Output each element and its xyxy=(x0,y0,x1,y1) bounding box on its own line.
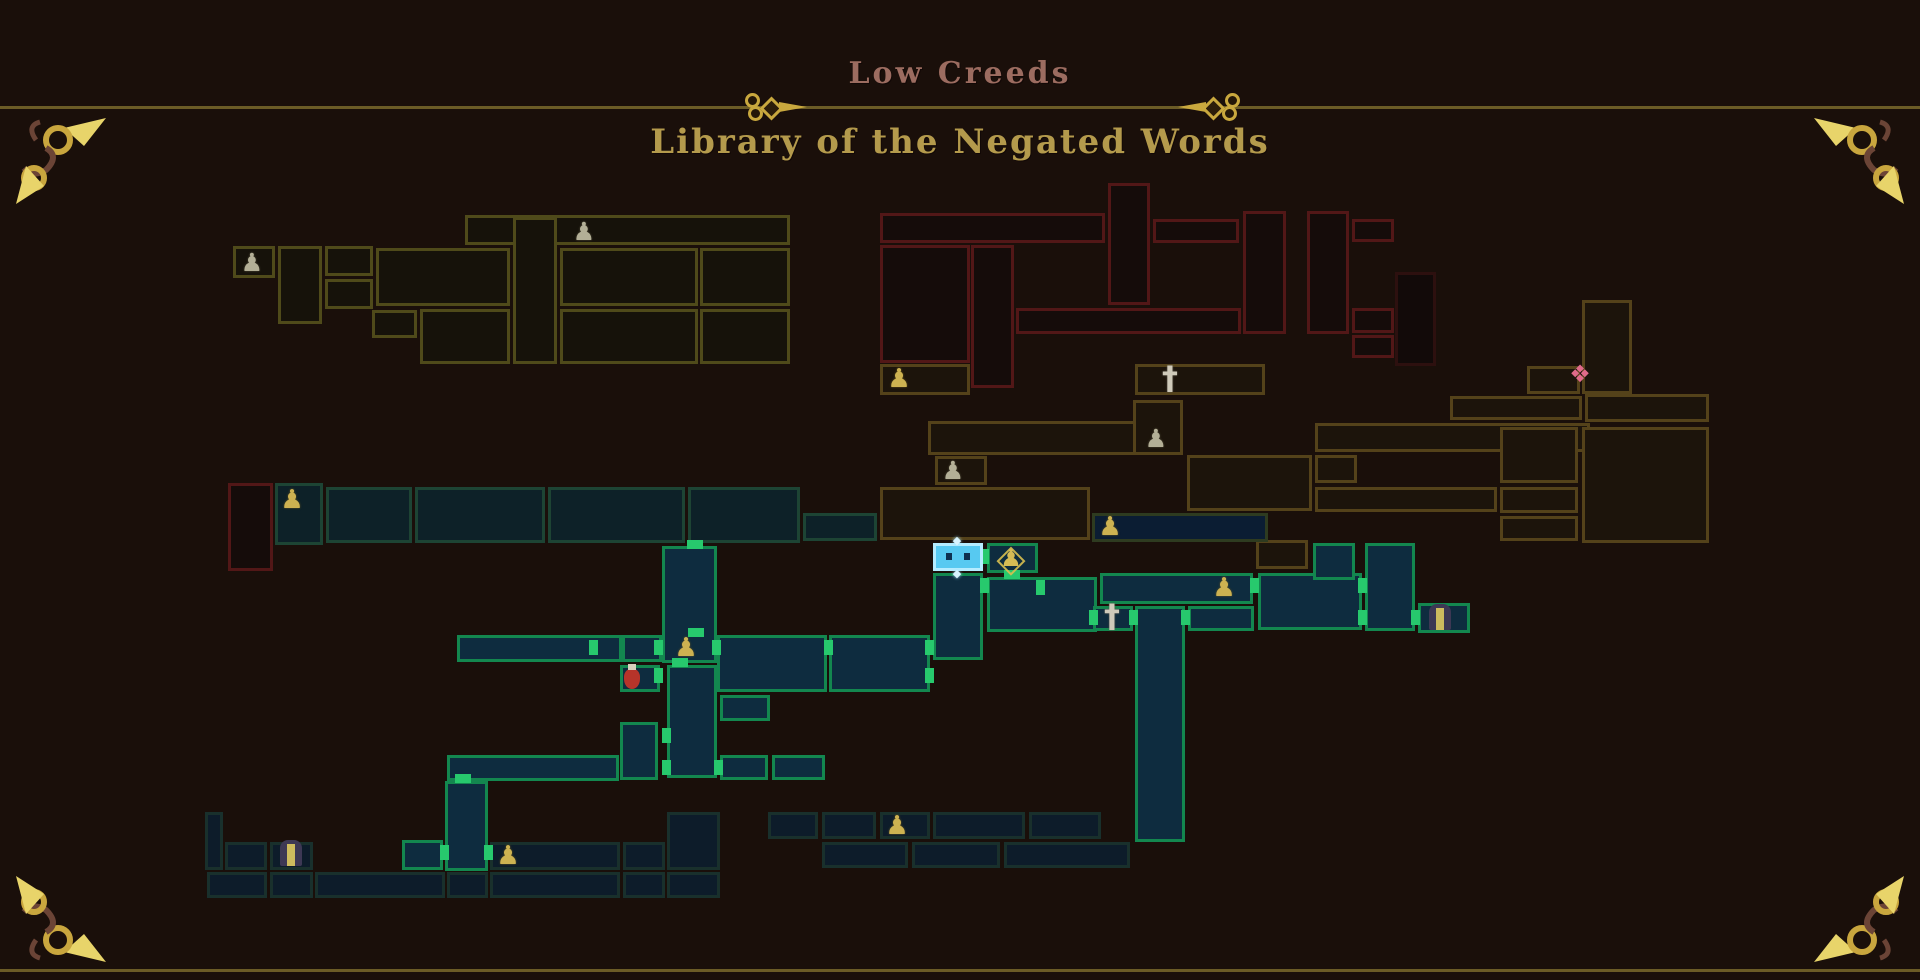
map-room xyxy=(1352,219,1394,242)
door-marker xyxy=(484,845,493,860)
map-room xyxy=(971,245,1014,388)
door-marker xyxy=(1129,610,1138,625)
map-room xyxy=(376,248,510,306)
map-room xyxy=(1500,487,1578,513)
door-marker xyxy=(662,728,671,743)
map-room xyxy=(1582,427,1709,543)
map-room xyxy=(325,279,373,309)
map-room xyxy=(402,840,443,870)
door-marker xyxy=(925,640,934,655)
lantern-gold-icon xyxy=(884,811,910,841)
door-marker xyxy=(980,578,989,593)
door-marker xyxy=(714,760,723,775)
map-room xyxy=(667,872,720,898)
map-room xyxy=(928,421,1148,455)
flask-icon xyxy=(624,669,640,689)
diamond-pink-icon xyxy=(1567,359,1593,389)
map-room xyxy=(1315,455,1357,483)
door-marker xyxy=(654,640,663,655)
map-room xyxy=(667,812,720,870)
map-room xyxy=(623,872,665,898)
map-room xyxy=(1307,211,1349,334)
map-room xyxy=(1153,219,1239,243)
map-room xyxy=(326,487,412,543)
map-room xyxy=(700,309,790,364)
map-room xyxy=(1243,211,1286,334)
map-room xyxy=(1016,308,1241,334)
map-room xyxy=(822,842,908,868)
sword-icon xyxy=(1157,363,1183,393)
map-room xyxy=(205,812,223,870)
door-marker xyxy=(1036,580,1045,595)
gate-icon xyxy=(280,840,302,866)
map-room xyxy=(415,487,545,543)
map-room xyxy=(513,217,557,364)
map-room xyxy=(1500,516,1578,541)
door-marker xyxy=(1358,610,1367,625)
map-room xyxy=(1256,540,1308,569)
map-room xyxy=(1258,573,1362,630)
map-room xyxy=(560,248,698,306)
map-room xyxy=(278,246,322,324)
map-room xyxy=(700,248,790,306)
map-room xyxy=(315,872,445,898)
door-marker xyxy=(687,540,703,549)
door-marker xyxy=(1181,610,1190,625)
map-room xyxy=(1004,842,1130,868)
door-marker xyxy=(1411,610,1420,625)
gate-icon xyxy=(1429,604,1451,630)
map-room xyxy=(768,812,818,839)
map-room xyxy=(880,245,970,363)
sword-icon xyxy=(1099,601,1125,631)
map-room xyxy=(372,310,417,338)
lantern-silver-icon xyxy=(571,216,597,246)
door-marker xyxy=(1250,578,1259,593)
lantern-gold-icon xyxy=(279,485,305,515)
map-room xyxy=(447,872,488,898)
door-marker xyxy=(654,668,663,683)
footer-rule xyxy=(0,969,1920,972)
map-room xyxy=(1135,606,1185,842)
map-room xyxy=(720,695,770,721)
map-room xyxy=(1313,543,1355,580)
map-room xyxy=(1029,812,1101,839)
lantern-silver-icon xyxy=(239,247,265,277)
door-marker xyxy=(589,640,598,655)
map-room xyxy=(772,755,825,780)
lantern-gold-icon xyxy=(886,364,912,394)
map-room xyxy=(1352,335,1394,358)
map-room xyxy=(720,755,768,780)
map-room xyxy=(620,722,658,780)
map-room xyxy=(1188,606,1254,631)
map-room xyxy=(1585,394,1709,422)
door-marker xyxy=(712,640,721,655)
map-room xyxy=(1450,396,1582,420)
map-room xyxy=(667,665,717,778)
door-marker xyxy=(440,845,449,860)
map-room xyxy=(1395,272,1436,366)
map-room xyxy=(1315,487,1497,512)
world-map xyxy=(0,0,1920,980)
map-room xyxy=(1187,455,1312,511)
map-room xyxy=(822,812,876,839)
map-room xyxy=(1365,543,1415,631)
map-room xyxy=(1352,308,1394,333)
door-marker xyxy=(925,668,934,683)
map-room xyxy=(880,487,1090,540)
map-room xyxy=(880,213,1105,243)
map-room xyxy=(933,812,1025,839)
door-marker xyxy=(1089,610,1098,625)
map-room xyxy=(560,309,698,364)
map-screen: Low Creeds Library of the Negated Words xyxy=(0,0,1920,980)
map-room xyxy=(270,872,313,898)
map-room xyxy=(548,487,685,543)
map-room xyxy=(1500,427,1578,483)
diamond-white-icon xyxy=(944,525,970,555)
lantern-silver-icon xyxy=(940,455,966,485)
map-room xyxy=(1135,364,1265,395)
door-marker xyxy=(455,774,471,783)
map-room xyxy=(1108,183,1150,305)
lantern-sparkle-icon xyxy=(998,543,1024,573)
map-room xyxy=(325,246,373,276)
map-room xyxy=(688,487,800,543)
map-room xyxy=(803,513,877,541)
lantern-gold-icon xyxy=(673,633,699,663)
lantern-gold-icon xyxy=(1097,512,1123,542)
map-room xyxy=(445,781,488,871)
map-room xyxy=(490,872,620,898)
map-room xyxy=(447,755,619,781)
map-room xyxy=(829,635,930,692)
map-room xyxy=(623,842,665,870)
door-marker xyxy=(662,760,671,775)
map-room xyxy=(207,872,267,898)
lantern-silver-icon xyxy=(1143,423,1169,453)
map-room xyxy=(225,842,267,870)
diamond-white-icon xyxy=(944,558,970,588)
map-room xyxy=(420,309,510,364)
map-room xyxy=(912,842,1000,868)
lantern-gold-icon xyxy=(1211,573,1237,603)
door-marker xyxy=(824,640,833,655)
map-room xyxy=(717,635,827,692)
door-marker xyxy=(1358,578,1367,593)
map-room xyxy=(228,483,273,571)
lantern-gold-icon xyxy=(495,841,521,871)
